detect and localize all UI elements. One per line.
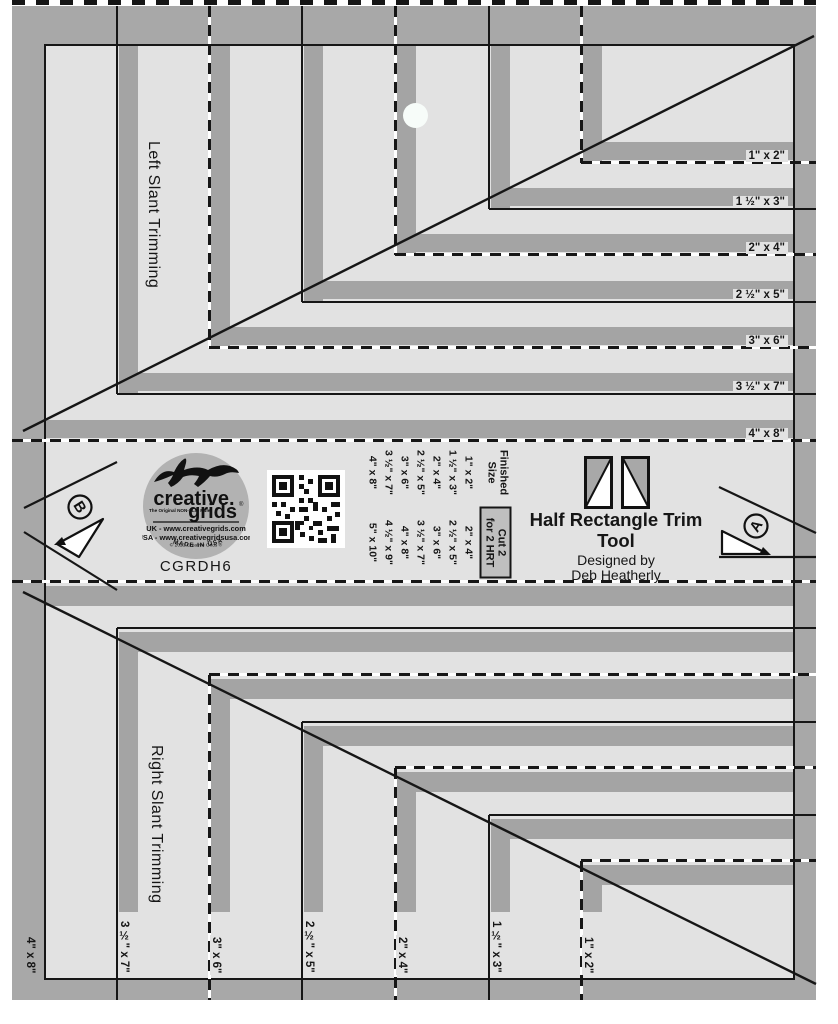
top-edge-dashed-line — [12, 0, 816, 5]
size-label: 3" x 6" — [746, 335, 788, 347]
table-row: 2" x 4"3" x 6" — [429, 444, 445, 584]
table-row: 4" x 8"5" x 10" — [365, 444, 381, 584]
trim-line-vertical-1half-x3 — [488, 6, 490, 209]
uk-url: UK - www.creativegrids.com — [146, 524, 246, 533]
creative-grids-logo: creative. The Original NON-SLIP Ruler gr… — [142, 452, 250, 560]
grid-bar — [304, 726, 793, 746]
registered-mark: ® — [239, 501, 244, 508]
model-number: CGRDH6 — [142, 558, 250, 575]
grid-bar — [491, 819, 793, 839]
grid-bar — [211, 46, 230, 348]
trim-line-horizontal-3half-x7 — [117, 393, 816, 395]
size-label-rotated: 1 ½" x 3" — [490, 915, 507, 975]
cut-2-header-box: Cut 2 for 2 HRT — [480, 507, 512, 579]
grid-bar — [304, 726, 323, 912]
grid-bar — [211, 327, 793, 345]
usa-url: USA - www.creativegridsusa.com — [142, 533, 250, 542]
trim-line-vertical-1x2 — [580, 6, 583, 163]
grid-bar — [304, 46, 323, 302]
trim-line-horizontal-3x6-bottom — [209, 673, 816, 676]
tool-title: Half Rectangle Trim Tool — [516, 509, 716, 551]
grid-bar — [397, 46, 416, 255]
grid-bar — [119, 632, 793, 652]
table-row: 3" x 6"4" x 8" — [397, 444, 413, 584]
grid-bar — [397, 234, 793, 252]
size-label-rotated: 2" x 4" — [396, 915, 413, 975]
grid-bar — [119, 373, 793, 391]
byline: Designed by — [516, 553, 716, 568]
size-label-rotated: 4" x 8" — [24, 915, 41, 975]
brand-name-line2: grids — [188, 501, 237, 523]
trim-line-horizontal-2half-x5 — [302, 301, 816, 303]
table-row: 3 ½" x 7"4 ½" x 9" — [381, 444, 397, 584]
size-label: 1 ½" x 3" — [733, 196, 788, 208]
top-section-label: Left Slant Trimming — [144, 141, 162, 288]
grid-bar — [397, 772, 416, 912]
grid-bar — [491, 819, 510, 912]
designer-name: Deb Heatherly — [516, 568, 716, 583]
bottom-section-label: Right Slant Trimming — [147, 745, 165, 904]
table-row: 1 ½" x 3"2 ½" x 5" — [445, 444, 461, 584]
ruler-sheet: 1" x 2" 1 ½" x 3" 2" x 4" 2 ½" x 5" 3" x… — [0, 0, 838, 1024]
size-label-rotated: 2 ½" x 5" — [303, 915, 320, 975]
grid-bar — [491, 46, 510, 209]
trim-line-horizontal-1half-x3 — [489, 208, 816, 210]
trim-line-horizontal-3x6 — [209, 346, 816, 349]
trim-line-vertical-3half-x7 — [116, 6, 118, 394]
trim-line-horizontal-2half-x5-bottom — [302, 721, 816, 723]
hanging-hole — [403, 103, 428, 128]
cut-2-header: Cut 2 for 2 HRT — [480, 502, 512, 584]
size-label-rotated: 1" x 2" — [582, 915, 599, 975]
trim-line-horizontal-1half-x3-bottom — [489, 814, 816, 816]
hrt-unit-icons — [584, 456, 650, 509]
grid-bar — [119, 46, 138, 394]
grid-bar — [397, 772, 793, 792]
right-slant-hrt-icon — [623, 458, 649, 508]
table-row: 1" x 2"2" x 4" — [461, 444, 477, 584]
grid-bar — [46, 420, 793, 438]
grid-bar — [583, 865, 602, 912]
size-label: 2 ½" x 5" — [733, 289, 788, 301]
title-block: Half Rectangle Trim Tool Designed by Deb… — [516, 509, 716, 583]
trim-line-vertical-2x4 — [394, 6, 397, 255]
cutting-size-table: Finished Size Cut 2 for 2 HRT 1" x 2"2" … — [365, 444, 512, 584]
trim-line-horizontal-2x4-bottom — [395, 766, 816, 769]
table-row: 2 ½" x 5"3 ½" x 7" — [413, 444, 429, 584]
trim-line-horizontal-1x2-bottom — [581, 859, 816, 862]
grid-bar — [46, 586, 793, 606]
size-label: 1" x 2" — [746, 150, 788, 162]
size-label: 3 ½" x 7" — [733, 381, 788, 393]
grid-bar — [583, 865, 793, 885]
size-label-rotated: 3" x 6" — [210, 915, 227, 975]
grid-bar — [211, 679, 793, 699]
qr-code — [267, 470, 345, 548]
size-label-rotated: 3 ½" x 7" — [118, 915, 135, 975]
trim-line-horizontal-4x8 — [12, 439, 816, 442]
trim-line-horizontal-3half-x7-bottom — [117, 627, 816, 629]
left-slant-hrt-icon — [586, 458, 612, 508]
grid-bar — [211, 679, 230, 912]
finished-size-header: Finished Size — [486, 444, 512, 502]
table-header-row: Finished Size Cut 2 for 2 HRT — [477, 444, 512, 584]
trim-line-vertical-3x6 — [208, 6, 211, 348]
grid-bar — [304, 281, 793, 299]
size-label: 4" x 8" — [746, 428, 788, 440]
trim-line-vertical-2half-x5 — [301, 6, 303, 302]
size-label: 2" x 4" — [746, 242, 788, 254]
grid-bar — [119, 632, 138, 912]
